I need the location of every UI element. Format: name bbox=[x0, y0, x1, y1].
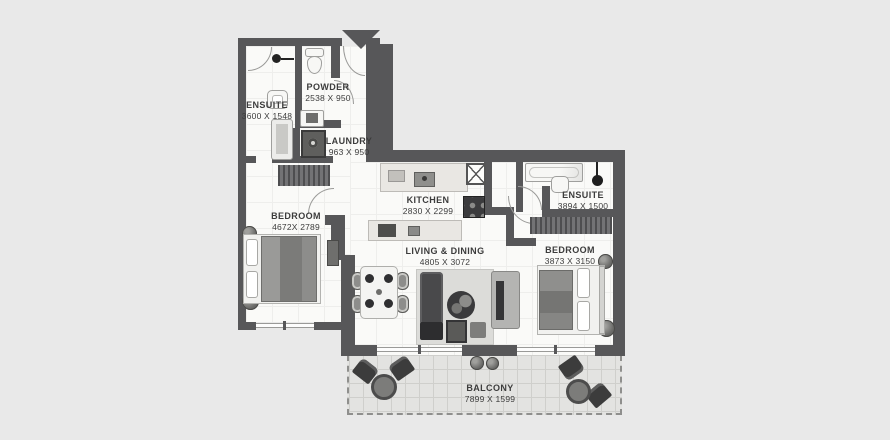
duvet bbox=[261, 236, 317, 302]
room-label-living-dining: LIVING & DINING 4805 X 3072 bbox=[385, 246, 505, 268]
wall bbox=[331, 38, 340, 78]
faucet bbox=[422, 176, 427, 181]
coffee-table bbox=[447, 291, 475, 319]
countertop-appliance bbox=[378, 224, 396, 237]
shower-arm bbox=[281, 58, 294, 60]
room-dims: 2830 X 2299 bbox=[378, 206, 478, 217]
shaft-fridge-box bbox=[466, 163, 486, 185]
window-mullion bbox=[283, 321, 286, 330]
room-name: LIVING & DINING bbox=[385, 246, 505, 257]
pillow bbox=[577, 301, 590, 331]
pillow bbox=[246, 239, 258, 266]
balcony-table bbox=[566, 379, 591, 404]
room-dims: 963 X 950 bbox=[299, 147, 399, 158]
floor-plan-canvas: ENSUITE 3600 X 1548 POWDER 2538 X 950 LA… bbox=[0, 0, 890, 440]
side-table bbox=[446, 320, 467, 343]
wardrobe bbox=[278, 165, 330, 186]
window-mullion bbox=[418, 345, 421, 354]
window-mullion bbox=[554, 345, 557, 354]
wall bbox=[595, 345, 625, 356]
plate bbox=[365, 299, 374, 308]
plate bbox=[365, 274, 374, 283]
room-dims: 4805 X 3072 bbox=[385, 257, 505, 268]
pillow bbox=[577, 268, 590, 298]
room-name: LAUNDRY bbox=[299, 136, 399, 147]
room-label-powder: POWDER 2538 X 950 bbox=[278, 82, 378, 104]
room-name: KITCHEN bbox=[378, 195, 478, 206]
wall bbox=[238, 322, 256, 330]
entry-arrow bbox=[342, 30, 380, 49]
balcony-table bbox=[371, 374, 397, 400]
plate bbox=[384, 274, 393, 283]
shower-tray bbox=[276, 124, 288, 154]
pillow bbox=[246, 271, 258, 298]
room-label-kitchen: KITCHEN 2830 X 2299 bbox=[378, 195, 478, 217]
wall bbox=[462, 345, 517, 356]
room-dims: 7899 X 1599 bbox=[440, 394, 540, 405]
plant bbox=[470, 356, 484, 370]
room-name: POWDER bbox=[278, 82, 378, 93]
wall bbox=[341, 345, 377, 356]
room-dims: 2538 X 950 bbox=[278, 93, 378, 104]
room-dims: 4672X 2789 bbox=[246, 222, 346, 233]
tv bbox=[496, 281, 504, 320]
room-dims: 3894 X 1500 bbox=[533, 201, 633, 212]
room-dims: 3873 X 3150 bbox=[520, 256, 620, 267]
wall bbox=[238, 38, 342, 46]
wall bbox=[378, 150, 625, 162]
cutting-board bbox=[388, 170, 405, 182]
pouf bbox=[470, 322, 486, 338]
room-label-laundry: LAUNDRY 963 X 950 bbox=[299, 136, 399, 158]
plant bbox=[486, 357, 499, 370]
plate bbox=[384, 299, 393, 308]
duvet bbox=[539, 270, 573, 330]
countertop-item bbox=[408, 226, 420, 236]
wardrobe bbox=[530, 217, 612, 234]
room-name: BEDROOM bbox=[520, 245, 620, 256]
room-name: BEDROOM bbox=[246, 211, 346, 222]
room-name: ENSUITE bbox=[533, 190, 633, 201]
centerpiece bbox=[376, 289, 382, 295]
room-dims: 3600 X 1548 bbox=[217, 111, 317, 122]
room-name: BALCONY bbox=[440, 383, 540, 394]
room-label-ensuite-2: ENSUITE 3894 X 1500 bbox=[533, 190, 633, 212]
shower-head-icon bbox=[592, 175, 603, 186]
ottoman bbox=[420, 322, 443, 340]
wall bbox=[314, 322, 341, 330]
sofa bbox=[420, 272, 443, 325]
shower-head-icon bbox=[272, 54, 281, 63]
wall bbox=[246, 156, 256, 163]
dresser bbox=[327, 240, 339, 266]
room-label-bedroom-1: BEDROOM 4672X 2789 bbox=[246, 211, 346, 233]
room-label-balcony: BALCONY 7899 X 1599 bbox=[440, 383, 540, 405]
headboard bbox=[599, 266, 605, 334]
room-label-bedroom-2: BEDROOM 3873 X 3150 bbox=[520, 245, 620, 267]
shower-arm bbox=[596, 162, 598, 176]
